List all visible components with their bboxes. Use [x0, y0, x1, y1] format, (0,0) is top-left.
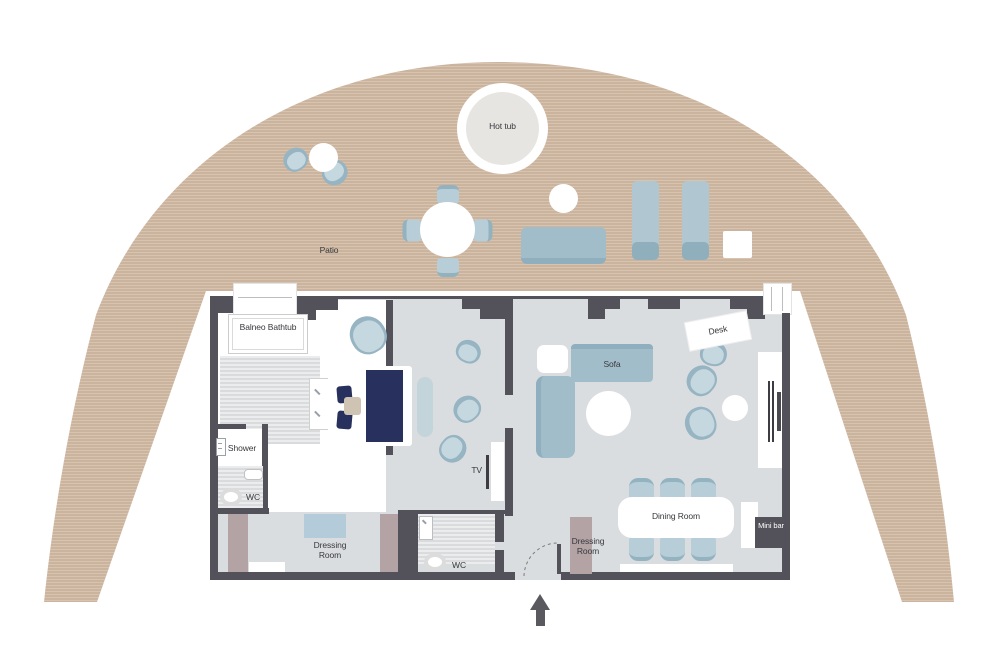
accent-pillow: [344, 397, 361, 415]
top-wall-pier: [648, 296, 680, 309]
desk-label: Desk: [687, 320, 750, 341]
dining-chair: [691, 537, 716, 561]
dining-chair: [629, 537, 654, 561]
wc-right-wall: [495, 510, 504, 542]
sink-icon: [419, 516, 433, 540]
bay-window: [233, 283, 297, 315]
sideboard: [620, 564, 733, 572]
wc-right-wall: [495, 550, 504, 580]
patio-bistro-table: [309, 143, 338, 172]
shower-wall: [262, 424, 268, 471]
patio-dining-chair: [474, 220, 493, 242]
bed-bench: [417, 377, 433, 437]
bed-duvet: [366, 370, 403, 442]
dining-room-label: Dining Room: [618, 512, 734, 522]
top-wall-pier-step: [588, 308, 605, 319]
window-frame-line: [771, 287, 772, 311]
dining-table: Dining Room: [618, 497, 734, 538]
mini-bar-label: Mini bar: [755, 522, 787, 531]
tv-icon: [486, 455, 489, 489]
shower-label: Shower: [222, 444, 262, 454]
nightstand: [330, 448, 348, 459]
dining-chair: [660, 537, 685, 561]
tv-label: TV: [462, 466, 482, 476]
floor-plan-canvas: Hot tub Patio: [0, 0, 1000, 667]
patio-bench: [521, 227, 606, 264]
tv-mount: [777, 392, 781, 431]
patio-square-table: [723, 231, 752, 258]
sun-lounger: [682, 181, 709, 260]
bottom-wall: [561, 572, 790, 580]
dressing-room-entry-label: Dressing Room: [563, 537, 613, 557]
vanity-counter: [309, 378, 329, 430]
hot-tub: Hot tub: [457, 83, 548, 174]
entry-door-leaf: [557, 544, 561, 574]
lounger-cushion: [632, 242, 659, 260]
sofa-label: Sofa: [571, 360, 653, 370]
dressing-bench: [249, 562, 285, 572]
window-frame-line: [238, 297, 292, 298]
mini-bar: Mini bar: [755, 517, 787, 548]
bathtub-label: Balneo Bathtub: [229, 323, 307, 333]
sun-lounger: [632, 181, 659, 260]
faucet-icon: [314, 389, 320, 395]
nightstand: [330, 353, 348, 364]
wc-wall: [263, 466, 268, 514]
wc-pier: [398, 510, 418, 580]
bed: [328, 366, 412, 446]
patio-dining-chair: [437, 258, 459, 277]
bedroom-living-wall: [505, 300, 513, 395]
dressing-rug: [304, 514, 346, 538]
sofa: Sofa: [571, 344, 653, 382]
wc-left-label: WC: [243, 493, 263, 503]
chaise: [536, 376, 575, 458]
entrance-arrow-icon: [530, 594, 550, 626]
wardrobe: [380, 514, 398, 572]
hot-tub-label: Hot tub: [457, 122, 548, 132]
lounger-cushion: [682, 242, 709, 260]
toilet-icon: [424, 553, 446, 571]
bottom-wall: [210, 572, 515, 580]
coffee-table: [586, 391, 631, 436]
patio-dining-chair: [403, 220, 422, 242]
window-frame-line: [782, 287, 783, 311]
tv-console: [491, 442, 504, 501]
bay-window: [763, 283, 792, 315]
patio-side-table: [549, 184, 578, 213]
patio-label: Patio: [307, 246, 351, 256]
tv-screen-line: [768, 381, 770, 442]
bedroom-living-wall: [505, 428, 513, 516]
wc-middle-label: WC: [449, 561, 469, 571]
toilet-icon: [220, 488, 242, 506]
faucet-icon: [314, 411, 320, 417]
tv-screen-line: [772, 381, 774, 442]
patio-bistro-chair: [279, 143, 313, 176]
dressing-room-left-label: Dressing Room: [302, 541, 358, 561]
bathtub: Balneo Bathtub: [228, 314, 308, 354]
sink-icon: [244, 469, 263, 480]
wardrobe: [228, 514, 248, 572]
side-table-round: [722, 395, 748, 421]
patio-round-table: [420, 202, 475, 257]
side-table: [537, 345, 568, 373]
shower-wall: [213, 424, 246, 429]
